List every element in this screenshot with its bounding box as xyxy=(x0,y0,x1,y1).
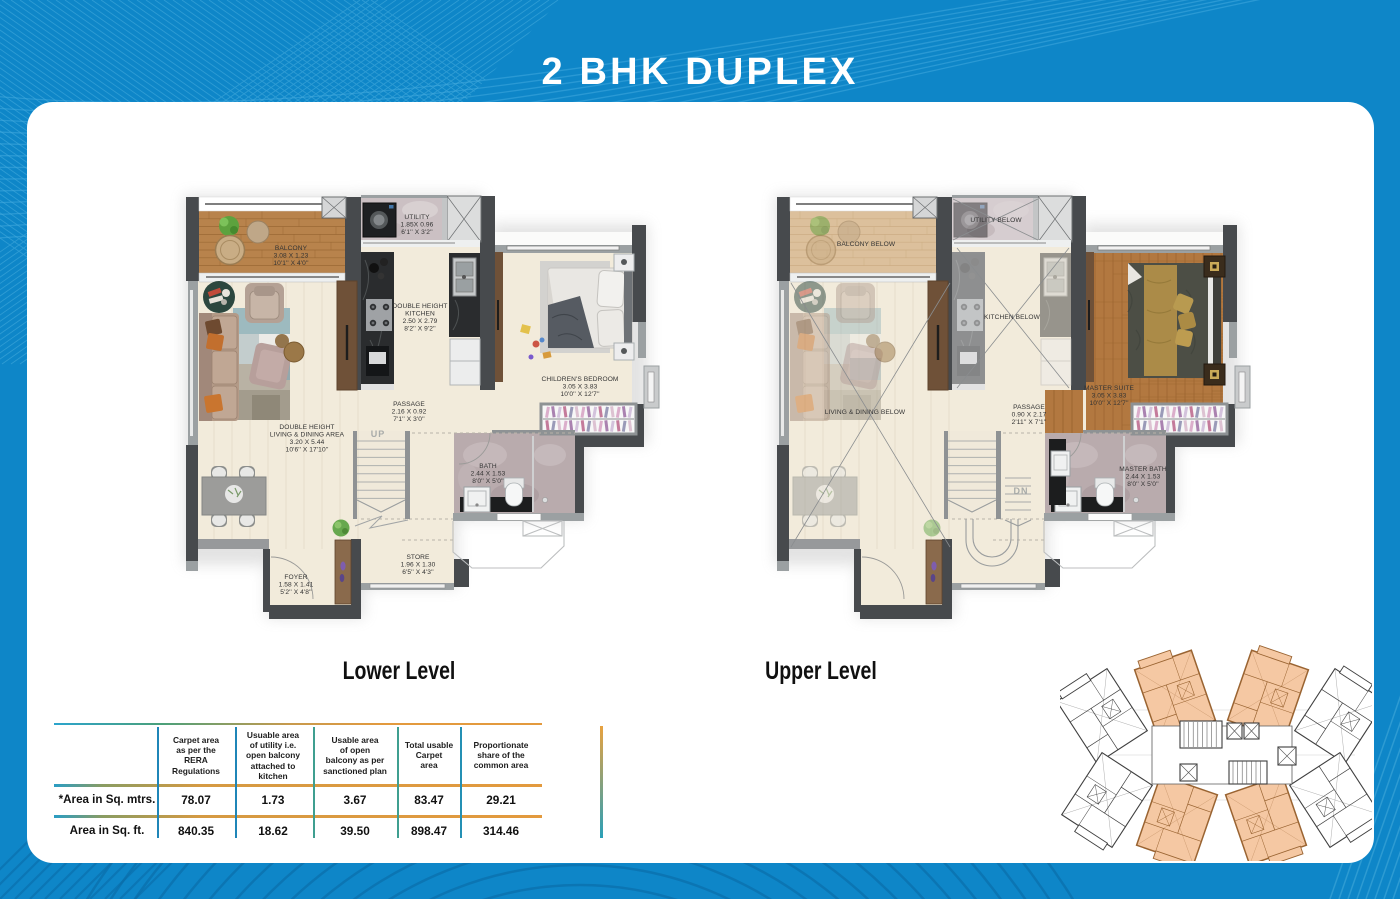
svg-text:UTILITY BELOW: UTILITY BELOW xyxy=(970,217,1022,224)
svg-text:BALCONY BELOW: BALCONY BELOW xyxy=(837,241,896,248)
svg-text:0.90 X 2.17: 0.90 X 2.17 xyxy=(1012,412,1047,419)
svg-text:10'0'' X 12'7'': 10'0'' X 12'7'' xyxy=(1089,400,1128,407)
svg-text:STORE: STORE xyxy=(406,554,430,561)
svg-text:CHILDREN'S BEDROOM: CHILDREN'S BEDROOM xyxy=(541,376,618,383)
svg-text:1.96 X 1.30: 1.96 X 1.30 xyxy=(401,562,436,569)
svg-text:MASTER SUITE: MASTER SUITE xyxy=(1084,385,1134,392)
svg-text:PASSAGE: PASSAGE xyxy=(1013,404,1045,411)
svg-text:FOYER: FOYER xyxy=(284,574,307,581)
svg-text:3.08 X 1.23: 3.08 X 1.23 xyxy=(274,253,309,260)
svg-text:8'0'' X 5'0'': 8'0'' X 5'0'' xyxy=(472,478,504,485)
svg-text:8'0'' X 5'0'': 8'0'' X 5'0'' xyxy=(1127,481,1159,488)
svg-text:BALCONY: BALCONY xyxy=(275,245,308,252)
svg-text:DOUBLE HEIGHT: DOUBLE HEIGHT xyxy=(392,303,447,310)
svg-text:6'1'' X 3'2'': 6'1'' X 3'2'' xyxy=(401,229,433,236)
svg-text:7'1'' X 3'0'': 7'1'' X 3'0'' xyxy=(393,416,425,423)
svg-text:KITCHEN: KITCHEN xyxy=(405,311,435,318)
svg-text:10'1'' X 4'0'': 10'1'' X 4'0'' xyxy=(273,260,308,267)
svg-text:2.16 X 0.92: 2.16 X 0.92 xyxy=(392,409,427,416)
svg-text:1.58 X 1.41: 1.58 X 1.41 xyxy=(279,582,314,589)
svg-text:2.50 X 2.79: 2.50 X 2.79 xyxy=(403,318,438,325)
svg-text:1.85X 0.96: 1.85X 0.96 xyxy=(401,222,434,229)
svg-text:2'11'' X 7'1'': 2'11'' X 7'1'' xyxy=(1012,419,1047,426)
svg-text:DOUBLE HEIGHT: DOUBLE HEIGHT xyxy=(279,424,334,431)
svg-text:PASSAGE: PASSAGE xyxy=(393,401,425,408)
svg-text:2.44 X 1.53: 2.44 X 1.53 xyxy=(1126,474,1161,481)
svg-text:DN: DN xyxy=(1014,486,1029,496)
svg-text:3.05 X 3.83: 3.05 X 3.83 xyxy=(1092,393,1127,400)
svg-text:5'2'' X 4'8'': 5'2'' X 4'8'' xyxy=(280,589,312,596)
svg-text:2.44 X 1.53: 2.44 X 1.53 xyxy=(471,471,506,478)
svg-text:10'0'' X 12'7'': 10'0'' X 12'7'' xyxy=(560,391,599,398)
svg-text:BATH: BATH xyxy=(479,463,497,470)
svg-text:LIVING & DINING AREA: LIVING & DINING AREA xyxy=(270,432,345,439)
svg-text:3.20 X 5.44: 3.20 X 5.44 xyxy=(290,439,325,446)
svg-text:3.05 X 3.83: 3.05 X 3.83 xyxy=(563,384,598,391)
svg-text:10'6'' X 17'10'': 10'6'' X 17'10'' xyxy=(286,447,329,454)
svg-text:UTILITY: UTILITY xyxy=(404,214,430,221)
svg-text:8'2'' X 9'2'': 8'2'' X 9'2'' xyxy=(404,326,436,333)
svg-text:LIVING & DINING BELOW: LIVING & DINING BELOW xyxy=(825,409,906,416)
svg-text:UP: UP xyxy=(371,429,386,439)
svg-text:MASTER BATH: MASTER BATH xyxy=(1119,466,1167,473)
svg-text:KITCHEN BELOW: KITCHEN BELOW xyxy=(984,314,1041,321)
svg-text:6'5'' X 4'3'': 6'5'' X 4'3'' xyxy=(402,569,434,576)
